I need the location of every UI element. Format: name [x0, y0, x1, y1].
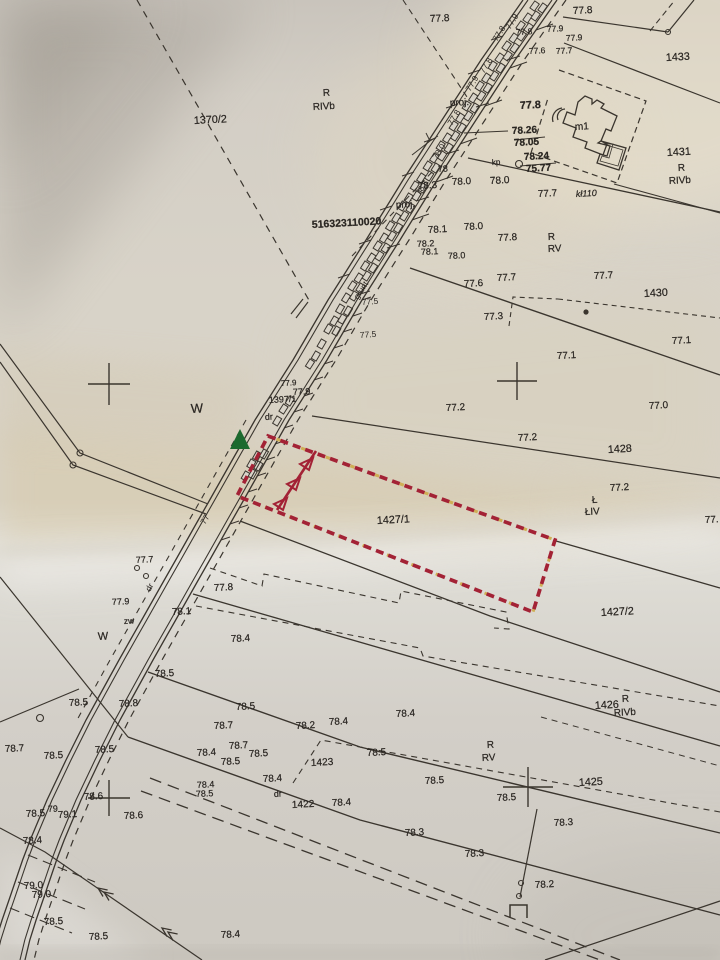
svg-text:77.5: 77.5 [359, 329, 376, 340]
svg-text:78.3: 78.3 [554, 817, 574, 829]
svg-text:1428: 1428 [608, 443, 633, 456]
svg-text:78.5: 78.5 [69, 697, 89, 709]
svg-text:77.2: 77.2 [446, 402, 466, 414]
svg-text:1431: 1431 [667, 146, 692, 159]
svg-text:77.5: 77.5 [361, 296, 378, 307]
svg-text:ŁIV: ŁIV [585, 506, 601, 518]
svg-text:78.5: 78.5 [26, 808, 46, 820]
svg-text:77.1: 77.1 [672, 335, 692, 347]
svg-text:77.7: 77.7 [594, 270, 614, 282]
svg-text:77.6: 77.6 [464, 278, 484, 290]
svg-text:77.6: 77.6 [529, 45, 546, 56]
svg-text:78.4: 78.4 [396, 708, 416, 720]
svg-text:78.0: 78.0 [464, 221, 484, 233]
svg-text:78.1: 78.1 [428, 224, 448, 236]
svg-text:77.8: 77.8 [498, 232, 518, 244]
svg-text:77.7: 77.7 [497, 272, 517, 284]
svg-text:78.7: 78.7 [229, 740, 249, 752]
svg-text:77.9: 77.9 [281, 378, 298, 388]
svg-text:W: W [98, 630, 110, 643]
svg-text:dr: dr [274, 789, 283, 799]
svg-text:1370/2: 1370/2 [194, 113, 228, 127]
svg-text:78.6: 78.6 [124, 810, 144, 822]
svg-text:kł110: kł110 [576, 188, 597, 199]
svg-text:proj.: proj. [450, 97, 470, 109]
svg-text:78.5: 78.5 [497, 792, 517, 804]
svg-text:77.2: 77.2 [610, 482, 630, 494]
svg-text:79.0: 79.0 [32, 889, 52, 901]
svg-text:zw: zw [124, 615, 136, 626]
svg-text:78.1: 78.1 [172, 606, 192, 618]
svg-text:R: R [678, 163, 686, 174]
svg-text:78.7: 78.7 [214, 720, 234, 732]
svg-text:dr: dr [265, 412, 274, 422]
svg-text:78.4: 78.4 [332, 797, 352, 809]
svg-text:77.7: 77.7 [556, 45, 573, 56]
svg-text:RV: RV [548, 243, 563, 255]
svg-text:78.4: 78.4 [231, 633, 251, 645]
svg-text:78.4: 78.4 [23, 835, 43, 847]
svg-text:78.5: 78.5 [95, 744, 115, 756]
svg-text:R: R [622, 694, 630, 705]
svg-text:78.26: 78.26 [512, 125, 538, 137]
svg-text:78.7: 78.7 [5, 743, 25, 755]
svg-text:78.5: 78.5 [44, 916, 64, 928]
svg-text:78.3: 78.3 [405, 827, 425, 839]
svg-text:77.: 77. [705, 514, 719, 526]
svg-text:77.8: 77.8 [214, 582, 234, 594]
svg-text:77.3: 77.3 [484, 311, 504, 323]
svg-text:1423: 1423 [311, 757, 334, 769]
svg-text:78.2: 78.2 [535, 879, 555, 891]
svg-text:75.77: 75.77 [526, 163, 552, 175]
svg-text:78.2: 78.2 [296, 720, 316, 732]
svg-text:78.1: 78.1 [421, 246, 439, 257]
svg-text:R: R [323, 88, 331, 99]
svg-text:79: 79 [48, 803, 59, 814]
svg-text:77.8: 77.8 [573, 5, 594, 17]
svg-text:78.8: 78.8 [119, 698, 139, 710]
svg-text:77.1: 77.1 [557, 350, 577, 362]
svg-text:78.5: 78.5 [249, 748, 269, 760]
svg-text:78.5: 78.5 [44, 750, 64, 762]
svg-text:78.5: 78.5 [221, 756, 241, 768]
svg-text:77.9: 77.9 [566, 32, 583, 43]
svg-text:78.4: 78.4 [221, 929, 241, 941]
svg-text:77.8: 77.8 [516, 26, 533, 37]
svg-text:W: W [190, 400, 204, 416]
svg-text:RV: RV [482, 752, 497, 764]
svg-text:77.8: 77.8 [520, 99, 542, 112]
svg-text:78.0: 78.0 [452, 176, 472, 188]
svg-text:77.2: 77.2 [518, 432, 538, 444]
svg-text:79.1: 79.1 [58, 809, 78, 821]
svg-text:78.4: 78.4 [263, 773, 283, 785]
svg-text:kp: kp [492, 158, 501, 167]
svg-text:78.4: 78.4 [197, 747, 217, 759]
svg-text:78.5: 78.5 [155, 668, 175, 680]
svg-text:78.0: 78.0 [490, 175, 511, 187]
svg-text:78: 78 [438, 163, 449, 174]
svg-text:R: R [487, 740, 495, 751]
svg-text:RIVb: RIVb [313, 101, 336, 113]
svg-text:m1: m1 [575, 121, 590, 133]
svg-text:78.5: 78.5 [89, 931, 109, 943]
svg-text:78.4: 78.4 [329, 716, 349, 728]
svg-text:1427/1: 1427/1 [377, 513, 411, 527]
svg-text:78.6: 78.6 [84, 791, 104, 803]
svg-text:77.9: 77.9 [293, 386, 311, 397]
svg-text:78.0: 78.0 [448, 250, 466, 261]
svg-text:78.5: 78.5 [367, 747, 387, 759]
svg-text:R: R [548, 232, 556, 243]
svg-text:77.9: 77.9 [112, 596, 130, 607]
svg-text:1425: 1425 [579, 776, 604, 789]
svg-text:78.5: 78.5 [196, 788, 214, 799]
svg-text:1427/2: 1427/2 [601, 605, 635, 619]
svg-text:77.8: 77.8 [430, 13, 451, 25]
svg-text:1430: 1430 [644, 287, 669, 300]
svg-text:RIVb: RIVb [614, 707, 637, 719]
svg-text:77.9: 77.9 [547, 23, 564, 34]
svg-text:78.5: 78.5 [425, 775, 445, 787]
svg-text:proj.: proj. [396, 199, 416, 211]
svg-text:78.24: 78.24 [524, 151, 550, 163]
svg-text:RIVb: RIVb [669, 175, 692, 187]
svg-text:77.7: 77.7 [538, 188, 558, 200]
svg-text:77.7: 77.7 [136, 554, 154, 565]
svg-text:1422: 1422 [292, 799, 315, 811]
svg-text:77.0: 77.0 [649, 400, 669, 412]
svg-text:78.3: 78.3 [465, 848, 485, 860]
svg-text:78.5: 78.5 [236, 701, 256, 713]
svg-text:1433: 1433 [666, 51, 691, 64]
svg-text:78.05: 78.05 [514, 137, 540, 149]
